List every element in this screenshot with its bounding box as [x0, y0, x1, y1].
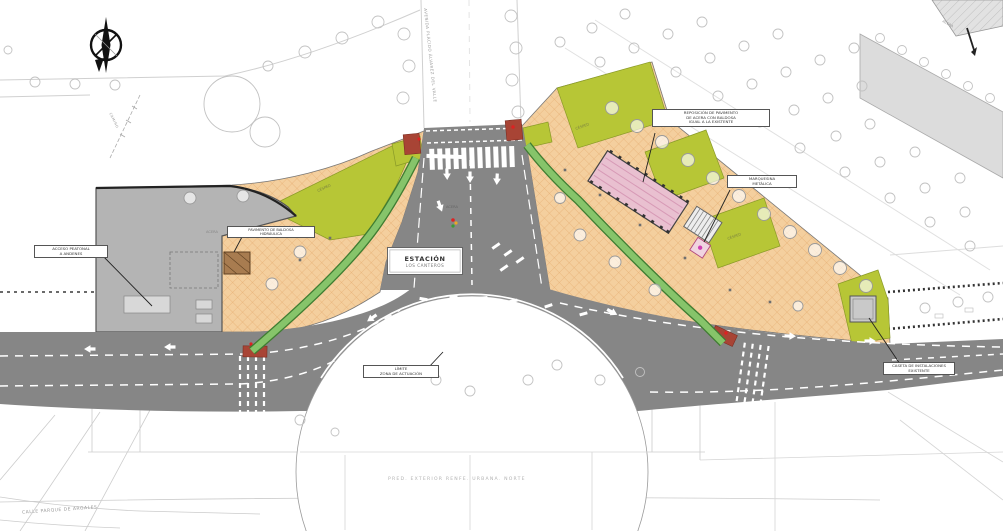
site-plan-drawing: CÉSPED CÉSPED CÉSPED ACERA ACERA ACERA — [0, 0, 1003, 531]
callout-plaza-paving: PAVIMENTO DE BALDOSA HIDRÁULICA — [227, 226, 315, 238]
callout-caseta: CASETA DE INSTALACIONES EXISTENTE — [883, 362, 955, 375]
kiosk-right — [850, 296, 876, 322]
sidewalk-label: ACERA — [206, 230, 219, 234]
site-plan-canvas: CÉSPED CÉSPED CÉSPED ACERA ACERA ACERA E… — [0, 0, 1003, 531]
callout-limite: LÍMITE ZONA DE ACTUACIÓN — [363, 365, 439, 378]
kiosk-left — [224, 252, 250, 274]
street-name-bottom: PRED. EXTERIOR RENFE. URBANA. NORTE — [388, 477, 526, 482]
station-name-label: ESTACIÓN LOS CANTEROS — [387, 247, 463, 275]
sidewalk-label: ACERA — [446, 205, 459, 209]
context-buildings — [860, 0, 1003, 178]
callout-paving: REPOSICIÓN DE PAVIMENTO DE ACERA CON BAL… — [652, 109, 770, 127]
station-name-line1: ESTACIÓN — [404, 255, 445, 263]
station-name-line2: LOS CANTEROS — [406, 263, 444, 268]
callout-marquesina: MARQUESINA METÁLICA — [727, 175, 797, 188]
north-compass-icon — [91, 17, 121, 73]
callout-underpass: ACCESO PEATONAL A ANDENES — [34, 245, 108, 258]
